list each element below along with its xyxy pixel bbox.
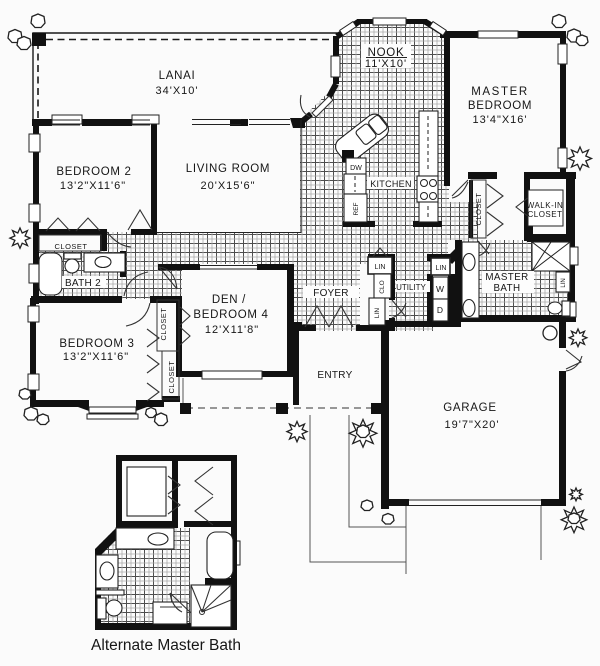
svg-text:CLOSET: CLOSET — [167, 360, 176, 393]
svg-text:GARAGE: GARAGE — [443, 402, 496, 414]
svg-text:UTILITY: UTILITY — [396, 283, 426, 292]
svg-text:CLOSET: CLOSET — [54, 242, 87, 251]
svg-text:ENTRY: ENTRY — [317, 370, 352, 381]
svg-text:BATH 2: BATH 2 — [65, 278, 101, 289]
svg-text:CLOSET: CLOSET — [527, 210, 562, 219]
svg-text:LIVING ROOM: LIVING ROOM — [186, 163, 270, 175]
svg-text:BEDROOM: BEDROOM — [468, 100, 532, 112]
svg-text:REF: REF — [353, 202, 360, 215]
svg-text:11'X10': 11'X10' — [365, 58, 407, 70]
svg-text:LIN: LIN — [374, 308, 381, 318]
svg-text:MASTER: MASTER — [471, 86, 529, 98]
svg-text:13'2"X11'6": 13'2"X11'6" — [63, 351, 129, 363]
svg-text:FOYER: FOYER — [313, 288, 348, 299]
svg-text:Alternate Master Bath: Alternate Master Bath — [91, 637, 241, 654]
svg-text:34'X10': 34'X10' — [155, 85, 198, 97]
svg-text:KITCHEN: KITCHEN — [370, 179, 412, 189]
svg-text:LANAI: LANAI — [159, 70, 196, 82]
svg-text:13'2"X11'6": 13'2"X11'6" — [60, 180, 126, 192]
svg-text:13'4"X16': 13'4"X16' — [472, 114, 527, 126]
svg-text:BEDROOM 4: BEDROOM 4 — [193, 309, 268, 321]
svg-text:12'X11'8": 12'X11'8" — [205, 324, 259, 336]
svg-text:WALK-IN: WALK-IN — [527, 201, 564, 210]
svg-text:D: D — [437, 305, 443, 315]
svg-text:DW: DW — [350, 165, 362, 172]
svg-text:CLO: CLO — [379, 280, 386, 293]
svg-text:BEDROOM 3: BEDROOM 3 — [59, 338, 134, 350]
svg-text:LIN: LIN — [375, 264, 386, 271]
svg-text:CLOSET: CLOSET — [474, 192, 483, 225]
svg-text:20'X15'6": 20'X15'6" — [200, 180, 255, 192]
svg-text:W: W — [436, 284, 444, 294]
svg-text:MASTER: MASTER — [485, 272, 528, 283]
svg-text:DEN /: DEN / — [212, 294, 246, 306]
svg-text:LIN: LIN — [561, 278, 567, 287]
svg-text:BEDROOM 2: BEDROOM 2 — [56, 166, 131, 178]
svg-text:19'7"X20': 19'7"X20' — [444, 419, 499, 431]
svg-text:CLOSET: CLOSET — [159, 307, 168, 340]
svg-text:BATH: BATH — [493, 283, 520, 294]
svg-text:LIN: LIN — [436, 265, 447, 272]
